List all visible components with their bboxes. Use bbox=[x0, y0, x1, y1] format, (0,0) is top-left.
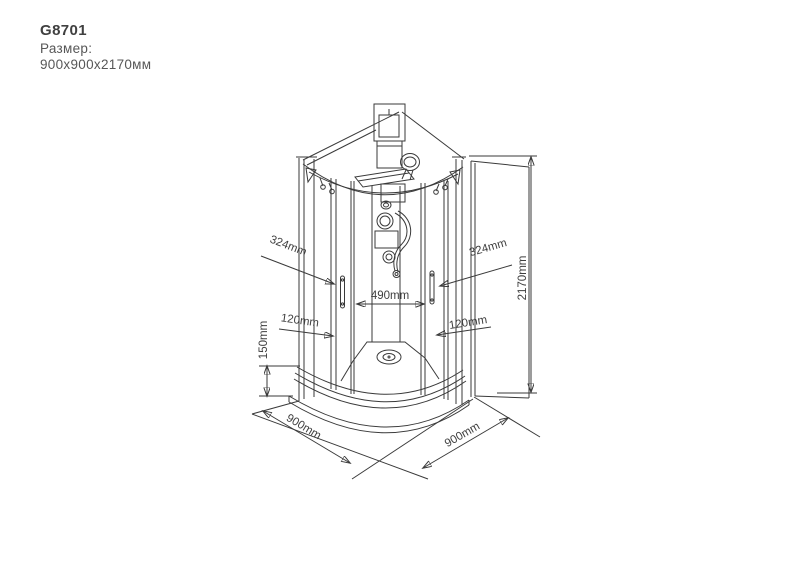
door-handle-right bbox=[430, 271, 434, 304]
rain-shower-head bbox=[355, 169, 414, 202]
dimension-label-324-right: 324mm bbox=[468, 237, 508, 259]
dimension-label-150: 150mm bbox=[258, 321, 270, 359]
drain-icon bbox=[377, 350, 401, 364]
dimension-label-490: 490mm bbox=[371, 290, 409, 302]
shower-cabin-diagram: 490mm 324mm 324mm 120mm 120mm 150mm bbox=[0, 0, 800, 571]
dimension-490: 490mm bbox=[357, 290, 424, 304]
control-panel bbox=[375, 201, 398, 263]
control-knob-icon bbox=[383, 251, 395, 263]
door-handle-left bbox=[341, 276, 345, 308]
dimension-120-left: 120mm bbox=[279, 312, 333, 336]
tray-rim-skirt bbox=[289, 367, 469, 433]
back-wall-right bbox=[402, 112, 466, 405]
shower-tray-floor bbox=[341, 342, 439, 381]
dimension-label-900-right: 900mm bbox=[443, 420, 482, 450]
product-drawing-page: G8701 Размер: 900x900x2170мм bbox=[0, 0, 800, 571]
dimension-label-324-left: 324mm bbox=[268, 234, 308, 259]
hand-shower-head bbox=[401, 154, 420, 181]
floor-lines bbox=[252, 397, 540, 479]
top-unit-box bbox=[374, 104, 405, 168]
shower-hose bbox=[393, 211, 411, 278]
dimension-label-2170: 2170mm bbox=[517, 256, 529, 301]
control-knob-icon bbox=[377, 213, 393, 229]
dimension-150: 150mm bbox=[258, 321, 300, 396]
dimension-900-right: 900mm bbox=[423, 418, 508, 468]
dimension-label-120-right: 120mm bbox=[448, 314, 488, 332]
body-jets bbox=[375, 231, 398, 248]
dimension-324-left: 324mm bbox=[261, 234, 334, 284]
dimension-120-right: 120mm bbox=[437, 314, 491, 335]
roof-rim-arc bbox=[303, 164, 463, 195]
dimension-324-right: 324mm bbox=[440, 237, 512, 286]
